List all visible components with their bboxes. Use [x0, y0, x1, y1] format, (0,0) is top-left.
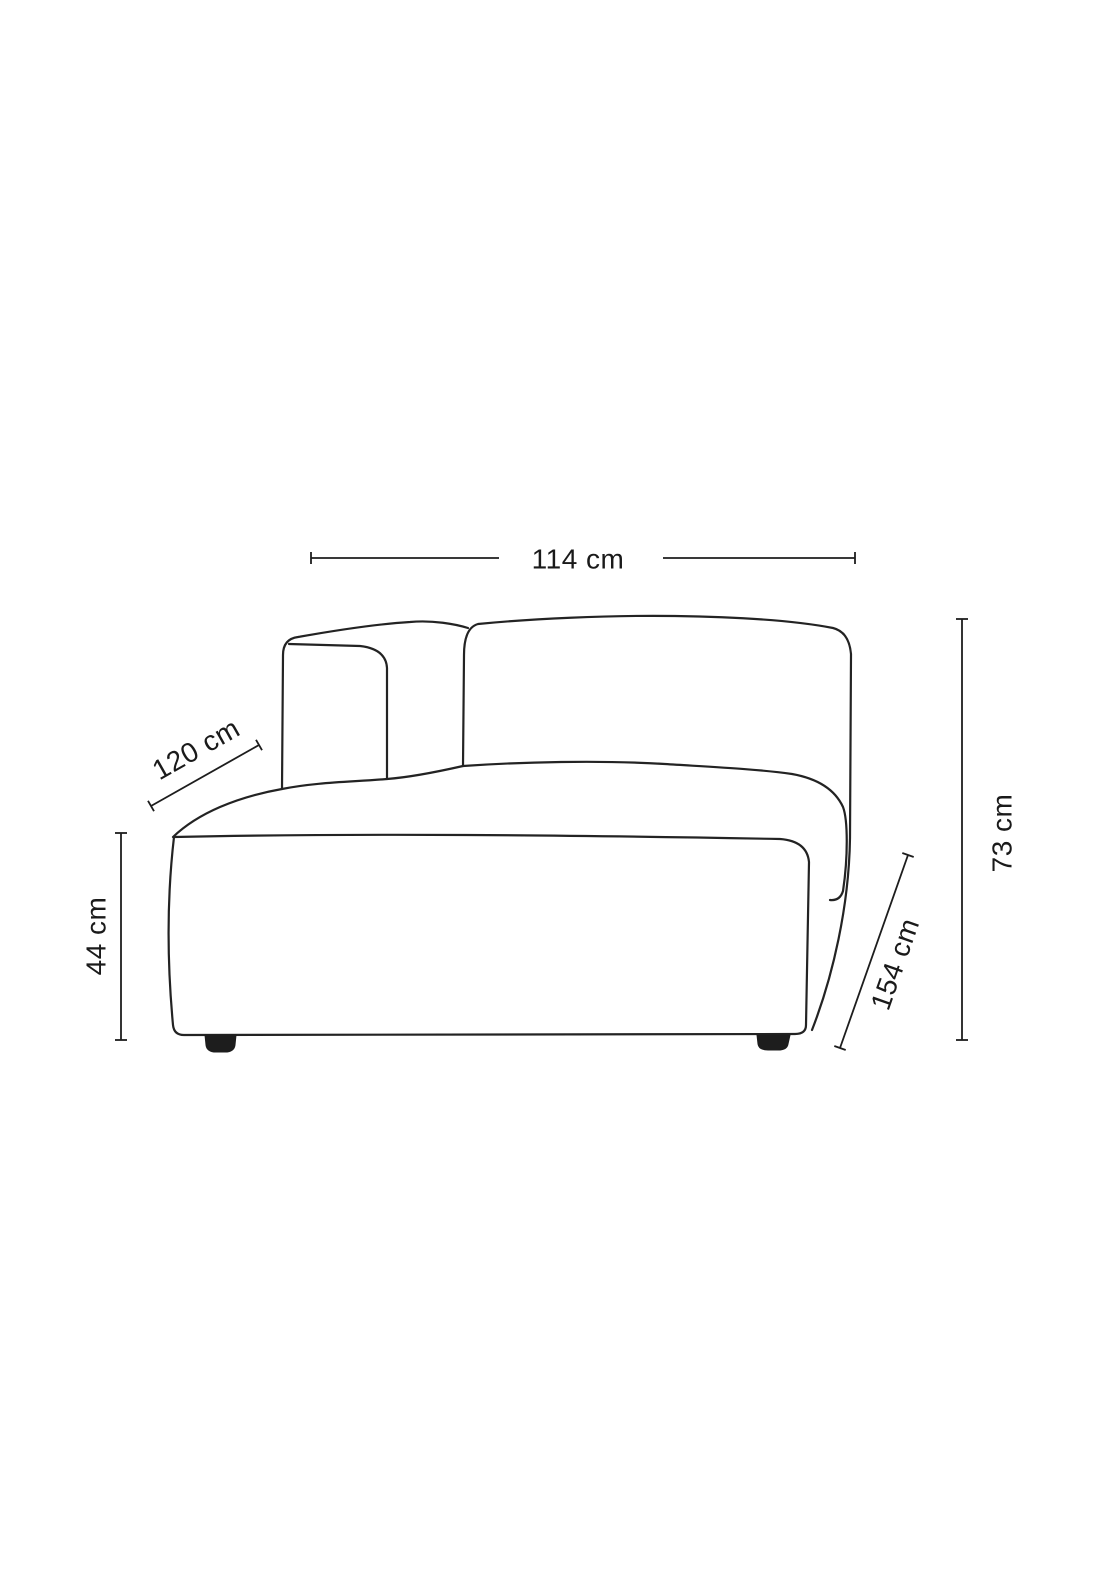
dim-tick [148, 801, 154, 811]
armrest-seam [289, 644, 387, 779]
dimension-back-edge: 120 cm [147, 712, 262, 811]
sofa-illustration [169, 616, 851, 1052]
sofa-foot-right [757, 1035, 790, 1050]
dim-tick [256, 740, 262, 750]
dimension-label-seat-height: 44 cm [81, 897, 112, 976]
diagram-page: 114 cm 120 cm 44 cm 73 cm 15 [0, 0, 1093, 1594]
dimension-label-depth: 154 cm [865, 914, 926, 1014]
dimension-label-width-top: 114 cm [532, 544, 625, 575]
dimension-seat-height: 44 cm [81, 833, 128, 1040]
dimension-total-height: 73 cm [956, 619, 1018, 1040]
dimension-label-back-edge: 120 cm [147, 712, 245, 786]
sofa-foot-left [205, 1035, 236, 1052]
sofa-dimension-diagram: 114 cm 120 cm 44 cm 73 cm 15 [0, 0, 1093, 1594]
base-panel [169, 835, 809, 1035]
dimension-width-top: 114 cm [311, 544, 855, 575]
armrest-outline [282, 621, 468, 789]
dimension-label-total-height: 73 cm [987, 794, 1018, 873]
